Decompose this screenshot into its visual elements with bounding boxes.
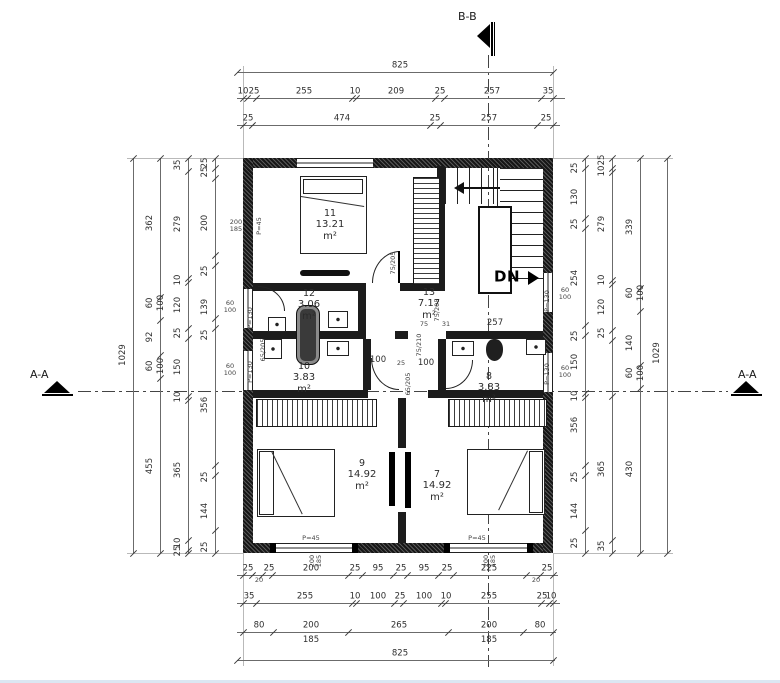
dim-line <box>237 632 556 633</box>
wall-room9-7-divider-b <box>398 512 406 543</box>
plan-annotation: 257 <box>487 319 503 328</box>
dim-label: 35 <box>244 593 255 602</box>
dim-label: 10 <box>598 275 607 286</box>
door-leaf-room11 <box>398 251 400 283</box>
plan-annotation: P=130 <box>544 290 551 312</box>
room-area: 3.83 m² <box>478 382 500 406</box>
plan-annotation: 100 <box>418 359 434 368</box>
dim-label: 185 <box>303 636 319 645</box>
dim-line <box>612 158 613 553</box>
dim-label: 100 <box>637 365 646 381</box>
plan-annotation: 65/205 <box>405 373 412 396</box>
dim-label: 25 <box>571 163 580 174</box>
dim-line <box>667 158 668 553</box>
dim-label: 356 <box>571 417 580 433</box>
window-top <box>297 158 373 168</box>
dim-line <box>237 98 565 99</box>
dim-label: 430 <box>626 461 635 477</box>
plan-annotation: P=130 <box>247 307 254 329</box>
window-jamb <box>352 543 358 553</box>
dim-line <box>640 158 641 553</box>
section-arrow-aa-right-icon <box>733 381 759 393</box>
dim-label: 20 <box>255 577 263 584</box>
dim-label: 144 <box>571 503 580 519</box>
section-marker-bb-label: B-B <box>458 10 477 23</box>
dim-label: 25 <box>541 115 552 124</box>
dim-label: 200 <box>201 215 210 231</box>
dim-label: 339 <box>626 219 635 235</box>
dim-label: 10 <box>350 593 361 602</box>
dim-label: 10 <box>174 392 183 403</box>
dim-label: 60 <box>146 298 155 309</box>
plan-annotation: P=45 <box>256 217 263 235</box>
plan-annotation: 100 <box>224 307 236 314</box>
dim-label: 1029 <box>653 342 662 364</box>
dim-label: 10 <box>441 593 452 602</box>
window-jamb <box>444 543 450 553</box>
room-area: 3.83 m² <box>293 372 315 396</box>
dim-label: 80 <box>535 622 546 631</box>
dim-label: 25 <box>201 472 210 483</box>
dim-label: 25 <box>243 565 254 574</box>
dresser-room11 <box>300 270 350 276</box>
dim-label: 25 <box>598 155 607 166</box>
room-label: 1113.21 m² <box>316 208 345 243</box>
plan-annotation: P=45 <box>468 535 486 542</box>
wall-room9-7-divider-a <box>398 398 406 448</box>
dim-label: 279 <box>174 216 183 232</box>
room-number: 10 <box>293 361 315 372</box>
plan-annotation: 31 <box>442 321 450 328</box>
dim-label: 356 <box>201 397 210 413</box>
dim-label: 25 <box>571 472 580 483</box>
pillow-room7 <box>529 451 543 513</box>
dim-label: 257 <box>484 88 500 97</box>
dim-label: 150 <box>174 359 183 375</box>
dim-label: 100 <box>370 593 386 602</box>
dim-label: 825 <box>392 650 408 659</box>
section-mark-bb-line2 <box>494 22 495 56</box>
dim-line <box>237 575 558 576</box>
dim-label: 455 <box>146 458 155 474</box>
room-area: 7.17 m² <box>418 298 440 322</box>
dim-label: 35 <box>174 160 183 171</box>
room-area: 14.92 m² <box>423 480 452 504</box>
room-number: 8 <box>478 371 500 382</box>
dim-label: 254 <box>571 270 580 286</box>
dim-label: 95 <box>373 565 384 574</box>
dim-label: 25 <box>201 167 210 178</box>
window-jamb <box>527 543 533 553</box>
dim-line <box>237 603 560 604</box>
dim-label: 25 <box>571 219 580 230</box>
window-jamb <box>270 543 276 553</box>
plan-annotation: 100 <box>224 370 236 377</box>
dim-label: 25 <box>201 266 210 277</box>
dim-label: 10 <box>174 275 183 286</box>
dim-label: 130 <box>571 189 580 205</box>
dim-line <box>237 72 553 73</box>
room-area: 14.92 m² <box>348 469 377 493</box>
dim-label: 25 <box>430 115 441 124</box>
section-marker-aa-left-label: A-A <box>30 368 49 381</box>
sink-room8 <box>526 339 546 355</box>
dim-label: 185 <box>481 636 497 645</box>
dim-label: 144 <box>201 503 210 519</box>
dim-label: 25 <box>350 565 361 574</box>
dim-line <box>133 158 134 553</box>
pocket-door-leaf <box>405 452 411 508</box>
room-area: 13.21 m² <box>316 219 345 243</box>
sink-room12 <box>268 317 286 332</box>
dim-label: 35 <box>598 541 607 552</box>
plan-annotation: 185 <box>230 226 242 233</box>
dim-label: 10 <box>546 593 557 602</box>
room-number: 13 <box>418 287 440 298</box>
extension-line <box>127 158 243 159</box>
dim-label: 365 <box>174 462 183 478</box>
dim-label: 92 <box>146 332 155 343</box>
dim-label: 362 <box>146 215 155 231</box>
pocket-door-leaf <box>389 452 395 506</box>
dim-line <box>237 660 555 661</box>
dim-label: 100 <box>157 358 166 374</box>
extension-line <box>243 66 244 158</box>
wardrobe-room9 <box>256 399 377 427</box>
extension-line <box>553 553 554 666</box>
dim-label: 25 <box>243 115 254 124</box>
floorplan-canvas: B-B A-A A-A <box>0 0 780 683</box>
plan-annotation: 185 <box>316 555 323 567</box>
dim-label: 100 <box>637 285 646 301</box>
dim-label: 25 <box>201 330 210 341</box>
plan-annotation: 75/205 <box>390 252 397 275</box>
dim-label: 25 <box>598 328 607 339</box>
dim-line <box>237 125 560 126</box>
dim-label: 20 <box>532 577 540 584</box>
pillow-room11 <box>303 179 363 194</box>
section-marker-aa-right-label: A-A <box>738 368 757 381</box>
dim-line <box>215 158 216 553</box>
section-mark-aa-left-line <box>42 394 73 396</box>
dim-label: 25 <box>571 331 580 342</box>
dim-label: 255 <box>297 593 313 602</box>
plan-annotation: P=130 <box>247 361 254 383</box>
dim-label: 80 <box>254 622 265 631</box>
dim-label: 95 <box>419 565 430 574</box>
dim-label: 120 <box>174 297 183 313</box>
room-label: 137.17 m² <box>418 287 440 322</box>
plan-annotation: P=130 <box>544 363 551 385</box>
pillow-room9 <box>259 451 274 515</box>
dim-label: 10 <box>238 88 249 97</box>
dim-label: 25 <box>174 328 183 339</box>
room-area: 3.06 m² <box>298 299 320 323</box>
plan-annotation: 25 <box>397 360 405 367</box>
dim-label: 200 <box>481 622 497 631</box>
sink-room13 <box>452 341 474 356</box>
section-mark-aa-right-line <box>731 394 762 396</box>
section-arrow-aa-left-icon <box>44 381 70 393</box>
dim-label: 255 <box>296 88 312 97</box>
plan-annotation: 185 <box>490 555 497 567</box>
toilet-room12 <box>328 311 348 328</box>
dim-label: 25 <box>396 565 407 574</box>
plan-annotation: 100 <box>559 294 571 301</box>
stair-direction-line <box>462 187 500 189</box>
room-number: 11 <box>316 208 345 219</box>
dim-label: 10 <box>571 391 580 402</box>
dim-label: 100 <box>157 295 166 311</box>
room-number: 7 <box>423 469 452 480</box>
dim-label: 150 <box>571 354 580 370</box>
dim-label: 25 <box>442 565 453 574</box>
window-bottom-room9 <box>276 543 352 553</box>
room-label: 103.83 m² <box>293 361 315 396</box>
wall-outer-top <box>243 158 553 168</box>
dim-label: 1029 <box>119 344 128 366</box>
dim-label: 60 <box>626 368 635 379</box>
dim-label: 25 <box>249 88 260 97</box>
dim-label: 25 <box>435 88 446 97</box>
room-number: 9 <box>348 458 377 469</box>
stair-direction-arrow-icon <box>454 182 464 194</box>
door-arc-room8 <box>446 360 473 389</box>
dim-label: 60 <box>146 361 155 372</box>
room-label: 123.06 m² <box>298 288 320 323</box>
stair-dn-label: DN <box>494 270 520 285</box>
room-label: 714.92 m² <box>423 469 452 504</box>
closet-stairwell <box>413 177 440 285</box>
plan-annotation: 75/210 <box>416 334 423 357</box>
dim-label: 60 <box>626 288 635 299</box>
dim-label: 120 <box>598 299 607 315</box>
dim-label: 35 <box>543 88 554 97</box>
dim-label: 140 <box>626 335 635 351</box>
dim-label: 255 <box>481 593 497 602</box>
dim-label: 825 <box>392 62 408 71</box>
wall-corridor-right <box>438 339 446 390</box>
dim-label: 474 <box>334 115 350 124</box>
dim-label: 265 <box>391 622 407 631</box>
dim-label: 209 <box>388 88 404 97</box>
plan-annotation: 100 <box>559 372 571 379</box>
extension-line <box>553 66 554 158</box>
dim-label: 10 <box>598 166 607 177</box>
dim-label: 200 <box>303 622 319 631</box>
room-number: 12 <box>298 288 320 299</box>
section-arrow-bb-icon <box>477 24 490 48</box>
plan-annotation: P=45 <box>302 535 320 542</box>
plan-annotation: 65/205 <box>260 339 267 362</box>
wall-mid-pier <box>395 331 408 339</box>
toilet-room8 <box>486 339 503 361</box>
dim-label: 25 <box>174 546 183 557</box>
room-label: 914.92 m² <box>348 458 377 493</box>
window-bottom-room7 <box>450 543 527 553</box>
dim-label: 25 <box>264 565 275 574</box>
wall-mid-right <box>446 331 543 339</box>
dim-label: 10 <box>350 88 361 97</box>
dim-label: 25 <box>201 542 210 553</box>
dim-label: 139 <box>201 299 210 315</box>
dim-label: 25 <box>395 593 406 602</box>
dim-label: 365 <box>598 461 607 477</box>
plan-annotation: 100 <box>370 356 386 365</box>
section-mark-bb-line <box>491 22 493 56</box>
dim-label: 257 <box>481 115 497 124</box>
room-label: 83.83 m² <box>478 371 500 406</box>
dim-label: 279 <box>598 216 607 232</box>
dn-arrow-icon <box>528 271 539 285</box>
dim-label: 100 <box>416 593 432 602</box>
sink-room10 <box>327 341 349 356</box>
dim-line <box>188 158 189 553</box>
dim-label: 25 <box>571 538 580 549</box>
dim-label: 25 <box>542 565 553 574</box>
